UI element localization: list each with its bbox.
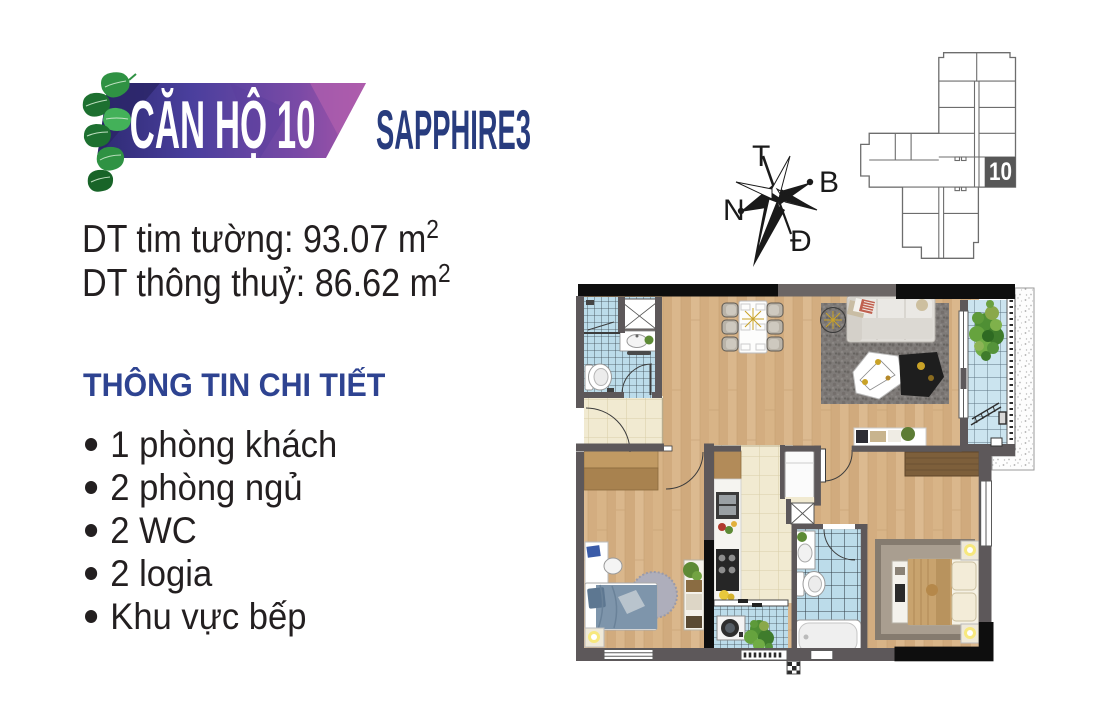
svg-text:CĂN HỘ 10: CĂN HỘ 10 xyxy=(130,87,316,163)
svg-text:10: 10 xyxy=(989,158,1012,186)
svg-text:Đ: Đ xyxy=(790,225,812,258)
svg-text:B: B xyxy=(819,166,839,199)
svg-text:T: T xyxy=(752,140,770,173)
svg-text:SAPPHIRE3: SAPPHIRE3 xyxy=(376,98,531,161)
